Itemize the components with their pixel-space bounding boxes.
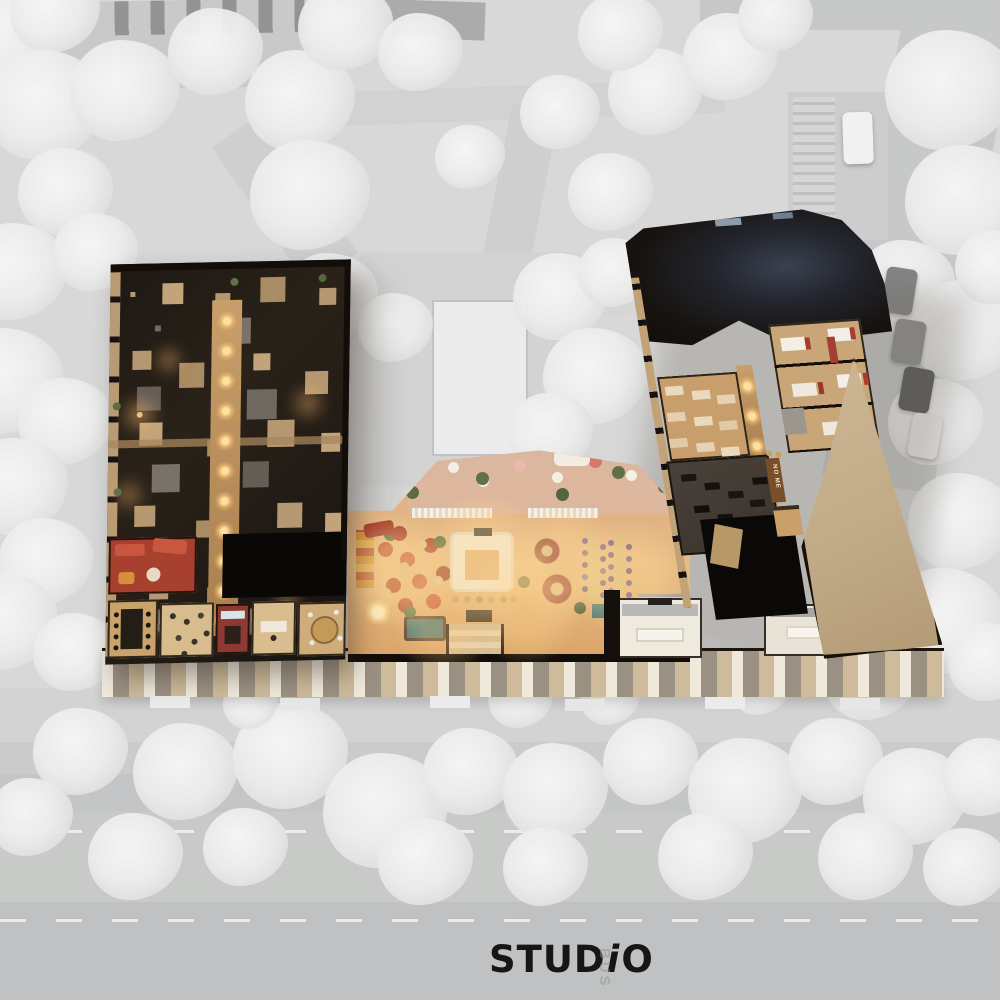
parked-car xyxy=(842,111,874,164)
curtains-right xyxy=(528,508,598,518)
gym-stools xyxy=(766,450,773,456)
left-wing xyxy=(105,259,351,664)
cafe-corner xyxy=(159,602,214,657)
bathroom-tile xyxy=(781,408,807,436)
shade-block xyxy=(222,532,347,599)
bed-red-accents xyxy=(804,337,811,349)
logo-part-1: STUD xyxy=(489,938,606,981)
apartment-wall-fragments xyxy=(130,292,135,297)
floor-lamp-glow xyxy=(366,600,390,624)
red-sofa-1 xyxy=(115,544,145,557)
red-lounge xyxy=(108,537,197,595)
office-desk xyxy=(261,621,287,633)
lounge-armchairs xyxy=(378,542,393,557)
roof-slabs xyxy=(155,325,161,331)
curtains-left xyxy=(412,508,492,518)
av-table xyxy=(224,626,240,644)
beds-white xyxy=(780,337,806,352)
kitchen-hood xyxy=(648,598,672,605)
orange-chair xyxy=(118,572,134,584)
red-feature-wall xyxy=(826,337,838,364)
av-room xyxy=(215,604,250,655)
office-room xyxy=(251,601,296,656)
meeting-table xyxy=(120,609,143,649)
entry-mat xyxy=(466,610,492,622)
balcony-plants xyxy=(113,402,121,410)
cafe-chairs xyxy=(170,613,176,619)
kitchen-island xyxy=(636,628,684,642)
site-plan-render: NO ME STUDiO BUS xyxy=(0,0,1000,1000)
bar-stools xyxy=(452,596,459,603)
island-opening xyxy=(465,550,499,580)
core-stair-wedge xyxy=(710,524,743,569)
coworking-room xyxy=(657,372,750,462)
red-sofa-2 xyxy=(152,538,187,555)
hall-plants xyxy=(434,536,446,548)
mail-room xyxy=(773,505,804,537)
dining-table-1 xyxy=(588,534,598,602)
dining-room xyxy=(297,602,346,657)
desk-chairs xyxy=(672,398,678,403)
bar-hood xyxy=(474,528,492,536)
desk-grid xyxy=(665,386,684,396)
logo-part-o: O xyxy=(621,938,653,981)
dining-chairs-purple-2 xyxy=(608,540,614,546)
terrace-tables xyxy=(448,462,459,473)
bus-road-marking: BUS xyxy=(596,948,613,989)
pool-table xyxy=(404,616,446,641)
meeting-room xyxy=(107,599,158,658)
gym-equipment xyxy=(681,474,697,482)
round-table-chairs xyxy=(308,612,313,617)
gym-wall-sign: NO ME xyxy=(771,464,781,489)
meeting-chairs xyxy=(114,612,119,617)
booth-sofa-round-2 xyxy=(542,574,572,604)
av-screen xyxy=(221,611,245,620)
entry-canopies xyxy=(150,696,190,708)
booth-sofa-round-1 xyxy=(534,538,560,564)
lounge-sofa xyxy=(363,520,395,539)
apartment-lamps xyxy=(137,412,143,418)
office-chair xyxy=(270,635,276,641)
coffee-table xyxy=(146,567,160,581)
lounge-side-tables xyxy=(400,562,409,571)
dining-chairs-purple-1 xyxy=(582,538,588,544)
island-bar xyxy=(450,532,514,592)
round-table xyxy=(310,616,338,645)
service-wall-gap xyxy=(604,590,620,660)
studio-logo: STUDiO xyxy=(489,938,654,981)
booth-bench-striped xyxy=(356,530,374,588)
